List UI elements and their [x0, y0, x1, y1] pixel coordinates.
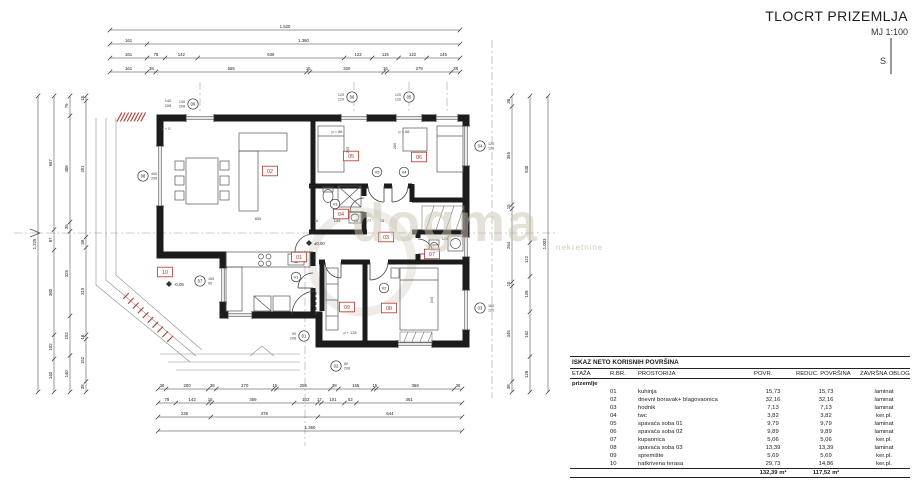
dim-label: 38	[453, 66, 458, 71]
dim-label: 1.225	[32, 238, 37, 249]
opening-size: 80	[344, 362, 348, 366]
chair	[220, 161, 229, 170]
svg-text:V4: V4	[402, 170, 408, 175]
svg-text:08: 08	[141, 174, 146, 179]
elevation-diamond	[166, 281, 172, 287]
table-cell: 9,79	[752, 420, 794, 428]
dim-label: 15	[506, 281, 511, 286]
table-cell: twc	[636, 412, 752, 420]
table-cell: spremište	[636, 452, 752, 460]
elevation-label: ±0,00	[314, 241, 325, 246]
dim-label: 270	[241, 383, 249, 388]
svg-text:V1: V1	[294, 275, 299, 280]
room-label-number: 07	[429, 252, 435, 258]
dim-label: 530	[524, 165, 529, 173]
dim-label: 279	[416, 66, 424, 71]
dim-label: 162	[524, 330, 529, 338]
window-symbol	[462, 290, 470, 330]
dim-label: 78	[165, 397, 170, 402]
table-cell: laminat	[858, 396, 910, 404]
dim-label: 1.520	[280, 24, 291, 29]
opening-size: 208	[151, 177, 157, 181]
table-cell: 03	[608, 404, 636, 412]
dim-label: 15	[372, 383, 377, 388]
table-cell	[570, 396, 608, 404]
dim-label: 115	[382, 52, 389, 57]
column-header: R.BR.	[608, 369, 636, 379]
table-cell: ker.pl.	[858, 412, 910, 420]
interior-dim: 15	[354, 218, 358, 223]
svg-text:09: 09	[191, 102, 196, 107]
dim-label: 236	[181, 411, 189, 416]
dim-label: 102	[302, 397, 310, 402]
dim-label: 567	[48, 159, 53, 167]
table-cell: 9,89	[752, 428, 794, 436]
window-symbol	[341, 114, 367, 122]
table-cell: 14,86	[794, 460, 858, 469]
opening-size: 400	[151, 172, 157, 176]
dim-label: 15	[506, 204, 511, 209]
svg-text:06: 06	[350, 95, 355, 100]
dim-label: 128	[524, 290, 529, 298]
dim-label: 368	[412, 383, 420, 388]
table-cell: 29,73	[752, 460, 794, 469]
opening-size: 208	[290, 337, 296, 341]
table-cell: kupaonica	[636, 436, 752, 444]
appliance	[273, 296, 290, 311]
svg-text:04: 04	[478, 144, 483, 149]
dim-label: 644	[386, 411, 394, 416]
dim-label: 655	[228, 66, 236, 71]
parapet-label: p = 88	[332, 129, 343, 134]
table-cell	[570, 404, 608, 412]
dim-label: 142	[189, 397, 197, 402]
room-label-number: 02	[267, 169, 273, 175]
window-symbol	[436, 114, 458, 122]
table-title: ISKAZ NETO KORISNIH POVRŠINA	[570, 356, 910, 369]
table-cell: ker.pl.	[858, 436, 910, 444]
drawing-title: TLOCRT PRIZEMLJA	[765, 8, 908, 24]
table-row: 03hodnik7,137,13laminat	[570, 404, 910, 412]
dimension-lines: 1.5201611.360161781426361221151221451613…	[32, 24, 550, 433]
table-cell: 01	[608, 388, 636, 396]
dim-label: 161	[125, 52, 133, 57]
interior-dim: 280	[392, 142, 397, 149]
table-cell: 9,79	[794, 420, 858, 428]
table-row: 10natkrivena terasa29,7314,86ker.pl.	[570, 460, 910, 469]
table-cell	[570, 444, 608, 452]
window-symbol	[156, 146, 164, 206]
dim-label: 200	[184, 383, 192, 388]
table-row: 06spavaća soba 029,899,89laminat	[570, 428, 910, 436]
parapet-label: p + 128	[343, 330, 356, 335]
stove-burner	[266, 261, 271, 266]
table-cell: hodnik	[636, 404, 752, 412]
dim-label: 315	[80, 287, 85, 295]
column-header: POVR.	[752, 369, 794, 379]
room-label-number: 04	[338, 212, 344, 218]
north-label: S	[880, 56, 886, 66]
stove-burner	[259, 254, 264, 259]
dim-label: 122	[354, 52, 362, 57]
table-cell: 7,13	[794, 404, 858, 412]
dim-label: 38	[149, 66, 154, 71]
table-cell: natkrivena terasa	[636, 460, 752, 469]
room-label-number: 06	[416, 155, 422, 161]
drawing-canvas: TLOCRT PRIZEMLJA MJ 1:100 dogma nekretni…	[0, 0, 920, 492]
table-cell: 132,39 m²	[752, 468, 794, 477]
dim-label: 255	[300, 383, 308, 388]
dim-label: 38	[160, 383, 165, 388]
table-totals-row: 132,39 m²117,52 m²	[570, 468, 910, 477]
opening-size: 208	[179, 105, 185, 109]
table-cell: 05	[608, 420, 636, 428]
column-header: REDUC. POVRŠINA	[794, 369, 858, 379]
dim-label: 140	[64, 370, 69, 378]
dim-label: 38	[210, 383, 215, 388]
dim-label: 478	[261, 411, 269, 416]
column-header: ETAŽA	[570, 369, 608, 379]
dim-label: 355	[506, 151, 511, 159]
interior-dim: 77	[367, 218, 371, 223]
dim-label: 15	[306, 66, 311, 71]
opening-size: 180	[488, 304, 494, 308]
red-hatch-marks	[117, 113, 173, 342]
column-header: PROSTORIJA	[636, 369, 752, 379]
table-cell: 08	[608, 444, 636, 452]
table-cell: laminat	[858, 420, 910, 428]
direction-chevron	[250, 346, 274, 356]
chair	[175, 176, 184, 185]
room-label-number: 08	[386, 306, 392, 312]
chair	[175, 191, 184, 200]
opening-size: 90	[208, 282, 212, 286]
table-cell	[570, 388, 608, 396]
dim-label: 636	[267, 52, 275, 57]
table-cell: 13,39	[752, 444, 794, 452]
table-cell	[570, 420, 608, 428]
kitchen-counter	[226, 267, 242, 311]
table-cell: 5,06	[752, 436, 794, 444]
parapet-label: p + 0	[162, 126, 172, 131]
table-cell: 09	[608, 452, 636, 460]
table-cell: laminat	[858, 428, 910, 436]
dim-label: 122	[524, 255, 529, 263]
table-cell: laminat	[858, 404, 910, 412]
dining-table	[186, 158, 218, 204]
table-cell: spavaća soba 02	[636, 428, 752, 436]
table-cell	[570, 460, 608, 469]
dim-label: 360	[48, 288, 53, 296]
sofa	[239, 133, 287, 151]
dim-label: 152	[64, 332, 69, 340]
svg-text:01: 01	[302, 334, 307, 339]
table-cell: ker.pl.	[858, 460, 910, 469]
dim-label: 145	[440, 52, 448, 57]
table-cell	[570, 436, 608, 444]
dim-label: 165	[352, 383, 360, 388]
table-cell	[570, 452, 608, 460]
table-cell: 15,73	[752, 388, 794, 396]
drawing-scale: MJ 1:100	[765, 27, 908, 37]
washing-machine-drum	[451, 239, 461, 249]
dim-label: 38	[506, 98, 511, 103]
red-hatch-tick	[167, 336, 173, 342]
dim-label: 140	[48, 371, 53, 379]
dim-label: 320	[343, 66, 351, 71]
svg-text:02: 02	[334, 364, 339, 369]
table-cell: dnevni boravak+ blagovaonica	[636, 396, 752, 404]
room-label-number: 03	[383, 235, 389, 241]
opening-size: 120	[395, 93, 401, 97]
svg-text:V2: V2	[382, 286, 387, 291]
table-cell: 07	[608, 436, 636, 444]
opening-size: 140	[179, 100, 185, 104]
chair	[220, 191, 229, 200]
table-cell: 117,52 m²	[794, 468, 858, 477]
window-symbol	[186, 114, 214, 122]
red-hatch-tick	[162, 331, 168, 337]
table-cell	[608, 468, 636, 477]
area-table: ISKAZ NETO KORISNIH POVRŠINA ETAŽAR.BR.P…	[570, 356, 910, 478]
table-cell	[570, 428, 608, 436]
dim-label: 161	[125, 38, 133, 43]
chair	[220, 176, 229, 185]
table-cell: 32,16	[794, 396, 858, 404]
bed	[437, 126, 463, 172]
dim-label: 491	[80, 165, 85, 173]
dim-label: 325	[64, 269, 69, 277]
red-hatch-tick	[138, 307, 144, 313]
table-cell: spavaća soba 01	[636, 420, 752, 428]
table-cell: 3,82	[752, 412, 794, 420]
table-cell: 5,69	[752, 452, 794, 460]
svg-text:03: 03	[478, 306, 483, 311]
table-group-row: prizemlje	[570, 379, 910, 388]
table-cell: 06	[608, 428, 636, 436]
area-table-grid: ETAŽAR.BR.PROSTORIJAPOVR.REDUC. POVRŠINA…	[570, 369, 910, 478]
interior-dim: 655	[255, 216, 262, 221]
table-cell: 5,69	[794, 452, 858, 460]
group-label: prizemlje	[570, 379, 910, 388]
interior-dim: 143	[334, 218, 341, 223]
dim-label: 461	[406, 397, 414, 402]
nightstand	[391, 268, 399, 278]
dim-label: 38	[332, 383, 337, 388]
title-block: TLOCRT PRIZEMLJA MJ 1:100	[765, 8, 908, 37]
dim-label: 18	[80, 95, 85, 100]
dim-label: 17	[317, 397, 322, 402]
dim-label: 264	[506, 241, 511, 249]
opening-size: 120	[488, 309, 494, 313]
window-symbol	[228, 311, 252, 319]
dim-label: 161	[125, 66, 133, 71]
table-cell: 04	[608, 412, 636, 420]
table-cell: 7,13	[752, 404, 794, 412]
room-label-number: 10	[162, 270, 168, 276]
porch-steps	[160, 346, 300, 370]
table-row: 05spavaća soba 019,799,79laminat	[570, 420, 910, 428]
table-cell	[570, 412, 608, 420]
dim-label: 38	[80, 384, 85, 389]
dim-label: 1.360	[298, 38, 309, 43]
opening-size: 120	[395, 98, 401, 102]
table-cell: spavaća soba 03	[636, 444, 752, 452]
room-label-number: 01	[296, 255, 302, 261]
table-cell: 9,89	[794, 428, 858, 436]
stove-burner	[259, 261, 264, 266]
table-cell	[570, 468, 608, 477]
dim-label: 78	[154, 52, 159, 57]
dim-label: 36	[64, 224, 69, 229]
opening-size: 120	[488, 147, 494, 151]
dim-label: 359	[249, 397, 257, 402]
table-cell: 15,73	[794, 388, 858, 396]
table-row: 07kupaonica5,065,06ker.pl.	[570, 436, 910, 444]
svg-text:V3: V3	[333, 202, 338, 207]
dim-label: 101	[329, 397, 337, 402]
dim-label: 142	[178, 52, 186, 57]
dim-label: 87	[48, 237, 53, 242]
svg-text:V5: V5	[375, 170, 380, 175]
elevation-label: -0,05	[174, 282, 184, 287]
red-hatch-tick	[157, 327, 163, 333]
dim-label: 128	[524, 370, 529, 378]
interior-dim: 345	[429, 297, 434, 304]
table-cell: 32,16	[752, 396, 794, 404]
dim-label: 15	[383, 66, 388, 71]
interior-dim: 208	[165, 103, 172, 108]
interior-dim: 205	[345, 147, 350, 154]
opening-size: 208	[344, 367, 350, 371]
north-arrow: S	[880, 38, 891, 74]
opening-size: 90	[292, 332, 296, 336]
table-row: 09spremište5,695,69ker.pl.	[570, 452, 910, 460]
table-cell: 10	[608, 460, 636, 469]
interior-dim: 126	[442, 236, 449, 241]
window-symbol	[398, 340, 432, 348]
dim-label: 52	[348, 397, 353, 402]
dim-label: 122	[409, 52, 417, 57]
table-cell: 3,82	[794, 412, 858, 420]
dim-label: 38	[506, 384, 511, 389]
dim-label: 1.360	[305, 425, 316, 430]
table-row: 08spavaća soba 0313,3913,39laminat	[570, 444, 910, 452]
dim-label: 16	[80, 334, 85, 339]
dim-label: 76	[64, 103, 69, 108]
opening-size: 120	[338, 93, 344, 97]
table-cell	[636, 468, 752, 477]
interior-dim: 15	[380, 218, 384, 223]
dim-label: 38	[456, 383, 461, 388]
dim-label: 38	[80, 239, 85, 244]
terrace-outline	[96, 118, 202, 362]
dim-label: 15	[272, 383, 277, 388]
table-cell	[858, 468, 910, 477]
dim-label: 1.003	[542, 238, 547, 249]
sofa	[239, 151, 258, 211]
table-cell: 5,06	[794, 436, 858, 444]
room-label-number: 09	[344, 305, 350, 311]
dim-label: 152	[80, 356, 85, 364]
interior-dim: 16	[314, 218, 318, 223]
column-header: ZAVRŠNA OBLOGA	[858, 369, 910, 379]
opening-size: 120	[488, 142, 494, 146]
room-label-number: 05	[348, 154, 354, 160]
stove-burner	[266, 254, 271, 259]
red-hatch-tick	[153, 322, 159, 328]
table-row: 01kuhinja15,7315,73laminat	[570, 388, 910, 396]
table-row: 02dnevni boravak+ blagovaonica32,1632,16…	[570, 396, 910, 404]
window-symbol	[396, 114, 422, 122]
table-cell: 13,39	[794, 444, 858, 452]
table-cell: ker.pl.	[858, 452, 910, 460]
opening-size: 150	[208, 277, 214, 281]
parapet-label: p = 88	[399, 129, 410, 134]
dim-label: 15	[208, 397, 213, 402]
opening-size: 120	[338, 98, 344, 102]
dim-label: 408	[64, 165, 69, 173]
svg-text:05: 05	[407, 95, 412, 100]
table-cell: laminat	[858, 388, 910, 396]
table-row: 04twc3,823,82ker.pl.	[570, 412, 910, 420]
table-cell: 02	[608, 396, 636, 404]
chair	[175, 161, 184, 170]
table-cell: laminat	[858, 444, 910, 452]
dim-label: 345	[506, 330, 511, 338]
dim-label: 102	[48, 343, 53, 351]
table-cell: kuhinja	[636, 388, 752, 396]
red-hatch-tick	[123, 293, 129, 299]
svg-text:07: 07	[198, 279, 203, 284]
section-centerlines	[14, 40, 556, 446]
